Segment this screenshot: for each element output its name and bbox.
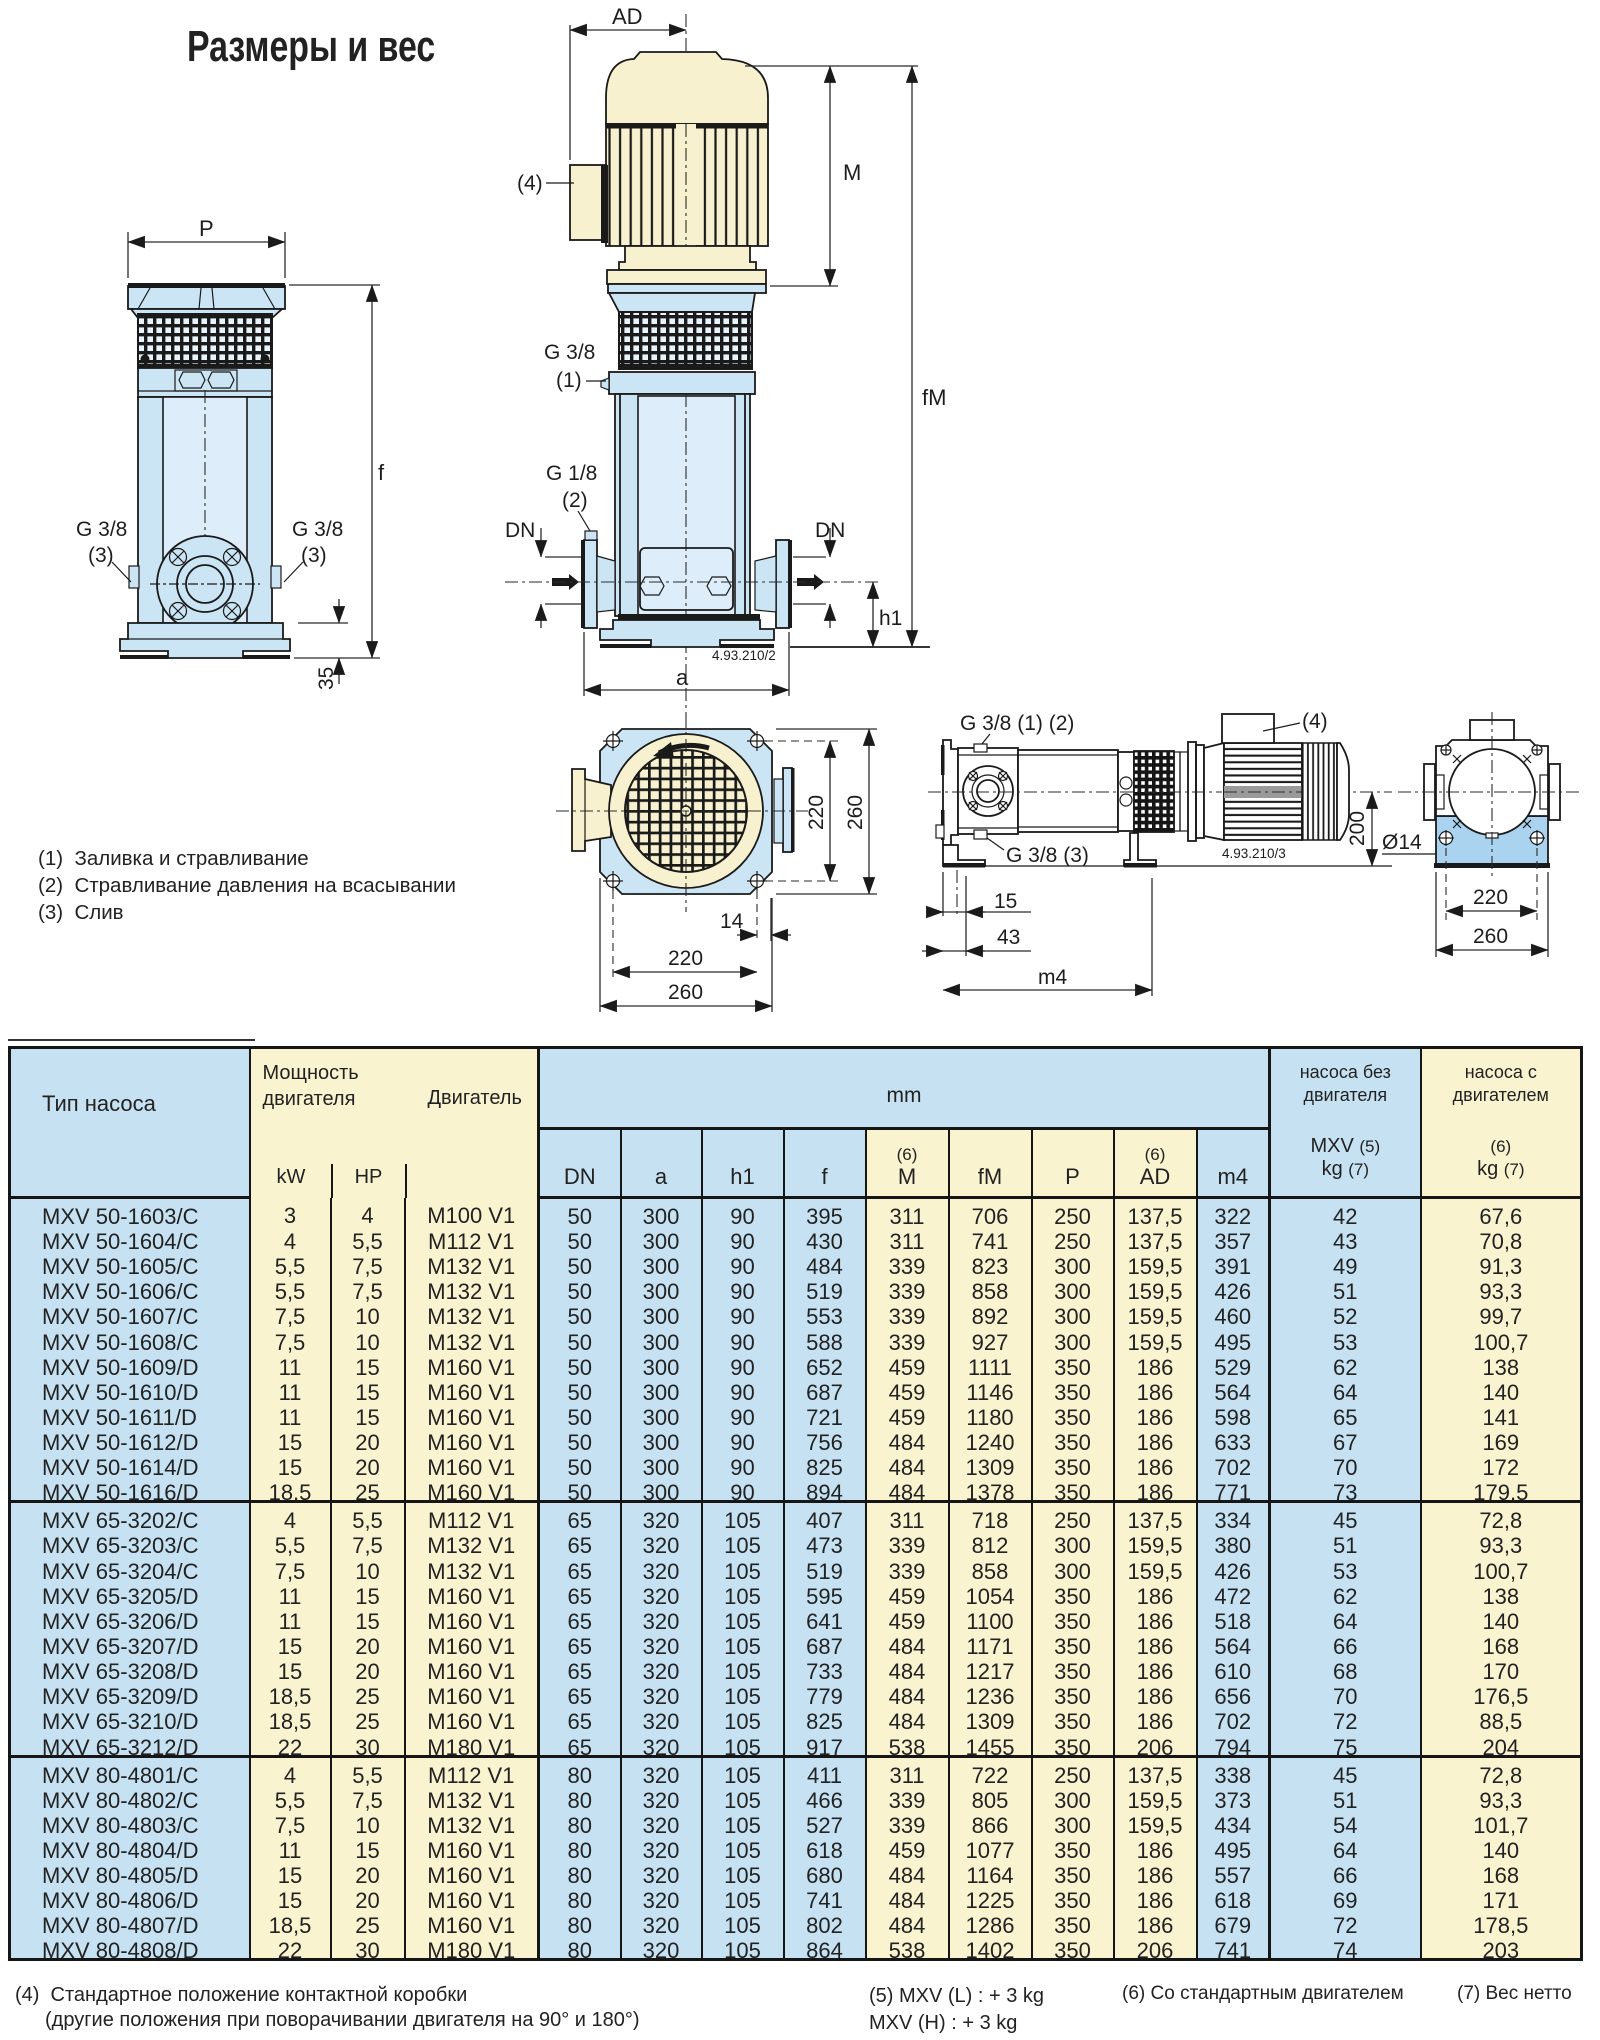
svg-text:M: M (843, 160, 861, 185)
svg-text:(3): (3) (301, 544, 327, 567)
svg-text:15: 15 (994, 890, 1017, 913)
svg-text:35: 35 (315, 667, 338, 690)
svg-text:(4): (4) (1302, 710, 1328, 733)
svg-text:(1): (1) (556, 369, 582, 392)
svg-text:h1: h1 (879, 607, 902, 630)
svg-text:260: 260 (668, 981, 703, 1004)
svg-text:DN: DN (505, 519, 535, 542)
svg-text:f: f (378, 460, 385, 485)
svg-text:220: 220 (805, 795, 828, 830)
svg-text:G 3/8 (3): G 3/8 (3) (1006, 844, 1089, 867)
svg-text:4.93.210/2: 4.93.210/2 (712, 648, 776, 663)
svg-text:260: 260 (1473, 925, 1508, 948)
svg-text:P: P (199, 216, 214, 241)
svg-text:G 3/8 (1) (2): G 3/8 (1) (2) (960, 712, 1074, 735)
svg-text:220: 220 (1473, 886, 1508, 909)
svg-text:200: 200 (1346, 811, 1369, 846)
svg-text:(2): (2) (562, 489, 588, 512)
svg-text:260: 260 (844, 795, 867, 830)
svg-text:Ø14: Ø14 (1382, 831, 1422, 854)
svg-text:G 3/8: G 3/8 (544, 341, 595, 364)
svg-text:fM: fM (922, 385, 946, 410)
svg-text:43: 43 (997, 926, 1020, 949)
svg-text:G 3/8: G 3/8 (76, 518, 127, 541)
svg-text:G 3/8: G 3/8 (292, 518, 343, 541)
svg-text:(4): (4) (517, 172, 543, 195)
svg-text:AD: AD (612, 4, 643, 29)
svg-text:m4: m4 (1038, 966, 1067, 989)
svg-text:G 1/8: G 1/8 (546, 462, 597, 485)
svg-text:4.93.210/3: 4.93.210/3 (1222, 846, 1286, 861)
svg-text:220: 220 (668, 947, 703, 970)
svg-text:(3): (3) (88, 544, 114, 567)
svg-text:14: 14 (720, 910, 744, 933)
svg-text:a: a (676, 665, 689, 690)
